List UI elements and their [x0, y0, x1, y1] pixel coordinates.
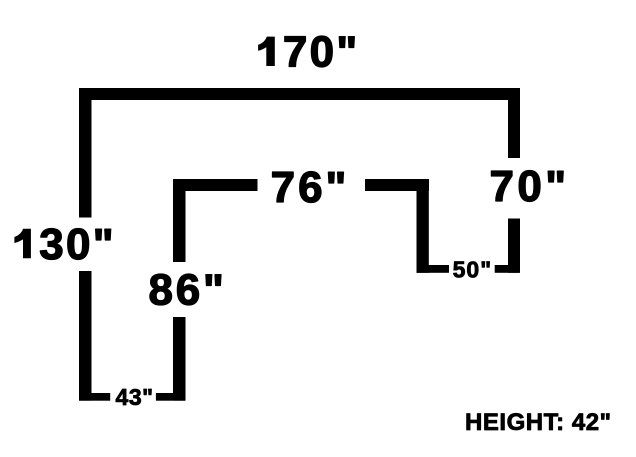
svg-text:70": 70" [283, 27, 357, 76]
svg-text:70": 70" [490, 162, 567, 211]
svg-text:30": 30" [39, 220, 113, 269]
svg-text:76": 76" [271, 163, 347, 212]
svg-text:43": 43" [116, 384, 154, 410]
svg-text:HEIGHT: 42": HEIGHT: 42" [465, 409, 611, 436]
svg-text:86": 86" [149, 265, 224, 314]
svg-text:50": 50" [453, 257, 492, 283]
